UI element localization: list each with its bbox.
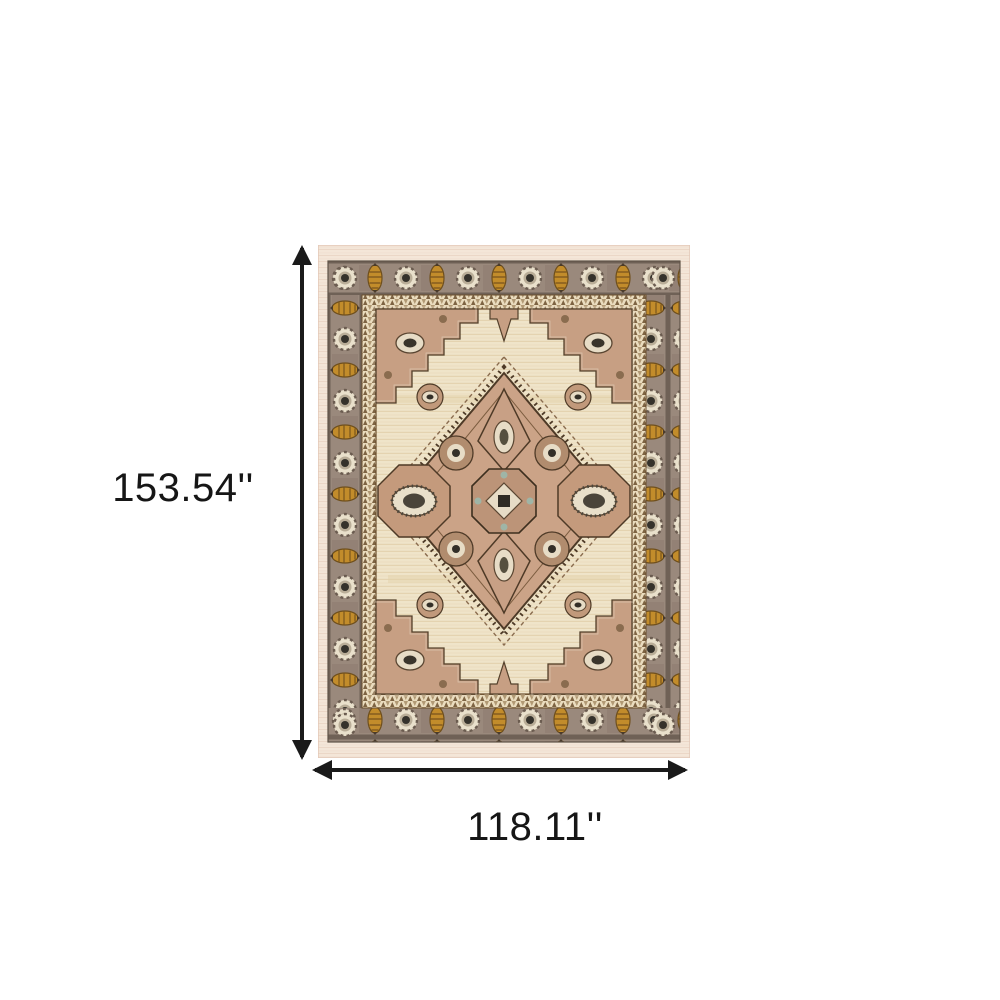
height-dimension-label: 153.54'' (63, 464, 303, 512)
width-dimension-label: 118.11'' (415, 803, 655, 851)
rug-illustration (318, 245, 690, 758)
rug-photo (318, 245, 690, 758)
product-dimension-image: 153.54'' 118.11'' (0, 0, 1000, 1000)
